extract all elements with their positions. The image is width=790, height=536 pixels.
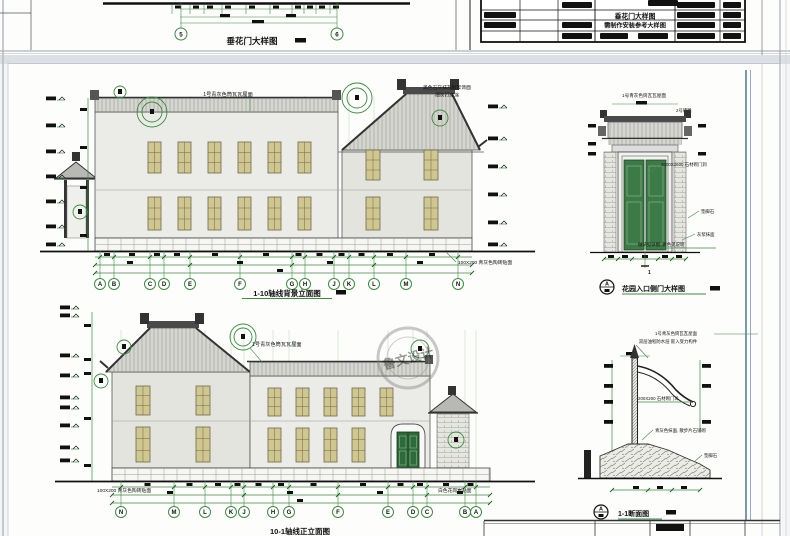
level-value [488,137,498,141]
gate-note-label: 做法见详图, 颜色见说明 [638,241,685,248]
dim-number [277,269,283,272]
grid-bubble-label: H [303,282,307,288]
grid-bubble-label: C [425,510,430,516]
dim-number [237,261,243,264]
section-label-top1: 1号青灰色筒瓦瓦屋面 [655,330,698,337]
dim-number [327,261,333,264]
grid-bubble-label: F [336,510,340,516]
grid-bubble-label: J [242,510,245,516]
dim-number [256,483,262,486]
level-value [60,306,70,310]
grid-bubble-label: H [271,510,275,516]
callout-id [99,378,103,383]
dim-number [235,483,241,486]
scale-blob [295,38,306,43]
elevation-rear-caption: 1-10轴线背景立面图 [253,288,321,298]
base-finish-label-right: 白色花岗岩贴面 [438,487,472,494]
dim-number [633,486,639,489]
grid-bubble-label: 5 [179,31,183,38]
callout-id [78,209,82,214]
grid-bubble-label: L [372,282,376,288]
dim-number [608,255,614,258]
level-value [488,243,498,247]
dim-number [287,491,293,494]
dim-number [333,6,339,9]
detail-gate-caption: 花园入口侧门大样图 [622,284,685,293]
cad-canvas: 56 垂花门大样图 垂花门大样图 需制作安装参考大样图 [0,0,790,536]
section-pier-label: 200X200 石材砌门垛 [638,395,679,402]
dim-number [359,253,365,256]
grid-bubble-label: K [229,510,234,516]
dim-number [187,483,193,486]
level-value [60,314,70,318]
grid-bubble-label: N [119,510,123,516]
top-strip-caption: 垂花门大样图 [226,36,277,46]
gable-label-1: 黑色石灰抹灰砂浆饰面 [423,84,471,91]
gate-stone-label: 垫脚石 [701,208,715,215]
gate-plaster-label: 灰浆抹面 [697,231,715,238]
dim-number [215,483,221,486]
dim-number [207,6,213,9]
callout-id [355,95,359,100]
level-value [488,105,498,109]
grid-bubble-label: A [474,510,479,516]
dim-number [154,253,160,256]
level-value [46,175,56,179]
dim-number [145,483,151,486]
grid-bubble-label: G [290,282,295,288]
dim-number [212,253,218,256]
roof-label: 1号青灰色筒瓦瓦屋面 [252,340,302,348]
level-value [488,193,498,197]
callout-id [438,115,442,120]
elevation-front-caption: 10-1轴线正立面图 [270,526,331,536]
gable-label-2: 细灰打底涂 [435,92,459,99]
level-value [46,97,56,101]
dim-number [681,486,687,489]
grid-bubble-label: M [172,510,177,516]
base-finish-label-left: 100X200 青灰色陶砖贴面 [97,487,151,494]
level-value [60,446,70,450]
grid-bubble-label: F [238,282,242,288]
cad-sheet-page: 56 垂花门大样图 垂花门大样图 需制作安装参考大样图 [0,0,790,536]
dim-number [676,255,682,258]
grid-bubble-label: G [287,510,292,516]
dim-number [175,6,181,9]
grid-bubble-label: A [98,282,103,288]
gate-opening-label: 2000X2600 石材砌门洞 [661,161,707,168]
dim-number [104,253,110,256]
titleblock-title-line1: 垂花门大样图 [615,12,656,21]
dim-number [429,253,435,256]
dim-number [387,253,393,256]
level-value [488,221,498,225]
grid-bubble-label: M [404,282,409,288]
base-finish-label: 100X200 青灰色陶砖贴面 [458,259,512,266]
grid-bubble-label: N [456,282,460,288]
dim-number [360,483,366,486]
dim-number [278,483,284,486]
grid-bubble-label: 6 [335,31,339,38]
detail-bubble-letter: A [599,507,603,513]
dim-number [417,483,423,486]
dim-number [129,253,135,256]
dim-number [127,261,133,264]
level-value [488,165,498,169]
detail-section-caption: 1-1断面图 [618,509,649,518]
dim-number [319,6,325,9]
grid-bubble-label: L [203,510,207,516]
dim-number [307,6,313,9]
grid-bubble-label: K [347,282,352,288]
dim-number [295,6,301,9]
callout-id [454,437,458,442]
dim-number [296,253,302,256]
titleblock-title-line2: 需制作安装参考大样图 [604,22,666,30]
dim-number [167,491,173,494]
dim-number [662,255,668,258]
gate-roof-label: 1号青灰色筒瓦瓦屋面 [622,92,666,99]
level-value [46,243,56,247]
dim-number [657,486,663,489]
level-value [46,225,56,229]
level-value [60,424,70,428]
section-cut-mark: 1 [648,270,651,276]
dim-number [311,483,317,486]
grid-bubble-label: B [463,510,468,516]
grid-bubble-label: E [386,510,390,516]
title-block: 垂花门大样图 需制作安装参考大样图 [481,0,745,42]
level-value [60,354,70,358]
level-value [46,124,56,128]
callout-id [150,109,154,114]
dim-number [297,499,303,502]
detail-bubble-letter: A [605,282,609,288]
dim-number [622,255,628,258]
grid-bubble-label: J [332,282,335,288]
level-value [60,396,70,400]
level-value [60,406,70,410]
dim-number [174,253,180,256]
grid-bubble-label: E [188,282,192,288]
level-value [60,374,70,378]
dim-number [193,6,199,9]
dim-number [398,483,404,486]
roof-label: 1号青灰色筒瓦瓦屋面 [203,90,253,98]
callout-id [122,344,126,349]
dim-number [249,6,255,9]
level-value [60,459,70,463]
grid-bubble-label: C [148,282,153,288]
dim-number [417,261,423,264]
grid-bubble-label: D [411,510,416,516]
level-value [46,200,56,204]
section-apron-label: 青灰色抹面, 散步片石铺砌 [655,427,706,434]
watermark-stamp: 鲁文设计 [378,328,438,388]
dim-number [468,483,474,486]
dim-number [225,6,231,9]
section-stone-label: 垫脚石 [704,452,718,459]
callout-id [118,89,122,94]
grid-bubble-label: D [162,282,167,288]
level-value [46,150,56,154]
dim-number [273,6,279,9]
dim-number [339,253,345,256]
grid-bubble-label: B [112,282,117,288]
dim-number [263,253,269,256]
dim-number [443,483,449,486]
dim-number [317,253,323,256]
dim-number [377,491,383,494]
section-label-top2: 双层油毡防水层 嵌入受力构件 [639,338,698,345]
callout-id [241,334,245,339]
